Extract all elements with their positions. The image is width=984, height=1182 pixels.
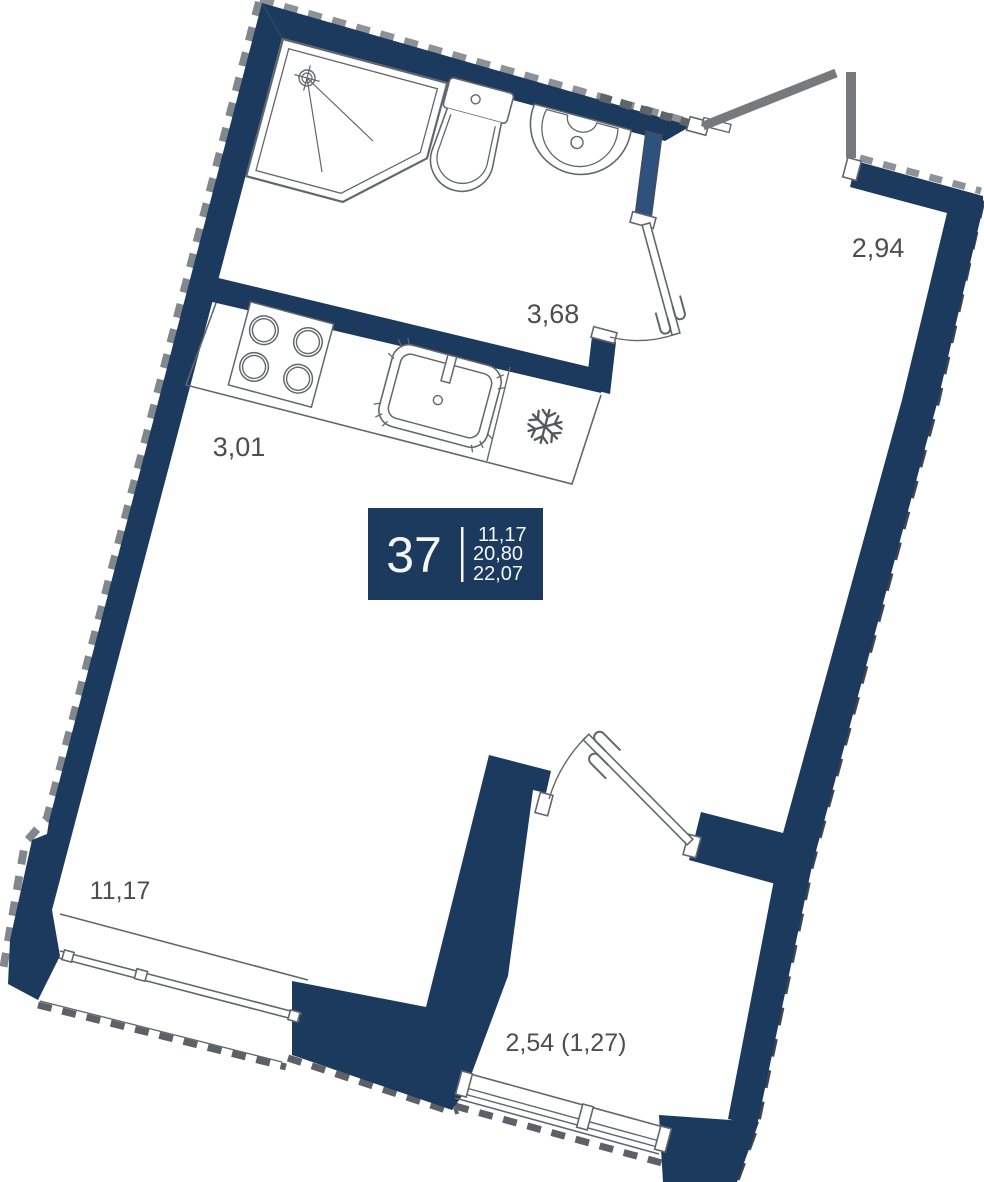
svg-text:3,01: 3,01 (213, 432, 266, 462)
svg-text:22,07: 22,07 (473, 563, 523, 585)
svg-text:2,94: 2,94 (852, 233, 905, 263)
svg-text:20,80: 20,80 (473, 543, 523, 565)
svg-text:37: 37 (386, 527, 442, 583)
svg-text:2,54 (1,27): 2,54 (1,27) (506, 1029, 627, 1057)
svg-text:3,68: 3,68 (527, 299, 580, 329)
svg-text:11,17: 11,17 (90, 877, 151, 905)
